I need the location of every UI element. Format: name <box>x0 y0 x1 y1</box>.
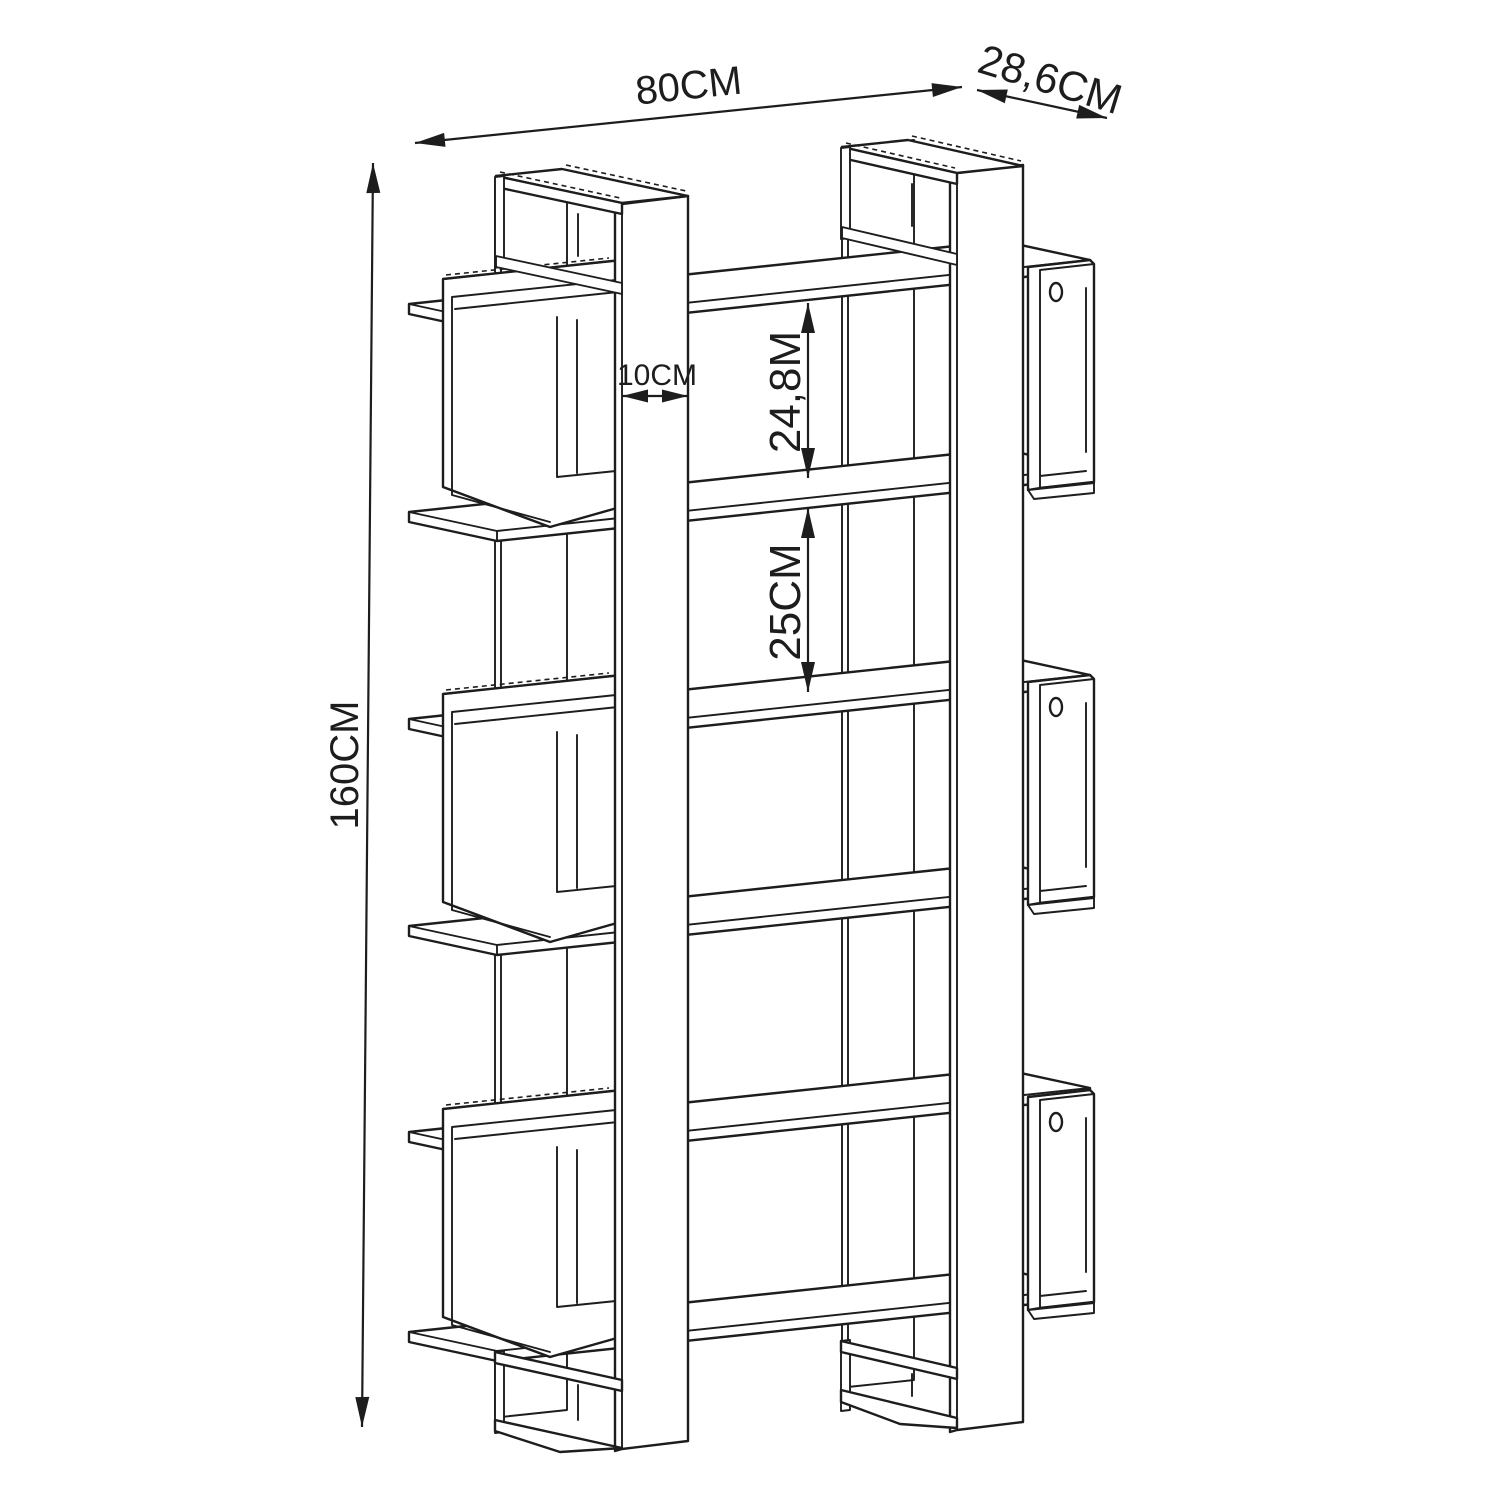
right-cubby-1 <box>1028 260 1094 499</box>
depth-label: 28,6CM <box>973 35 1127 123</box>
upright-width-label: 10CM <box>617 359 697 392</box>
screw-hole-1 <box>1050 283 1062 301</box>
width-label: 80CM <box>633 59 744 114</box>
dimension-upright-width: 10CM <box>617 359 697 403</box>
left-cubby-2 <box>443 673 625 942</box>
screw-hole-3 <box>1050 1113 1062 1131</box>
dimension-depth: 28,6CM <box>973 35 1127 123</box>
dimension-width: 80CM <box>415 59 962 147</box>
gap-upper-label: 24,8M <box>761 331 810 453</box>
dimension-gap-upper: 24,8M <box>761 303 815 478</box>
rear-upright-right <box>842 140 914 1388</box>
left-cubby-3 <box>443 1088 625 1357</box>
dimension-gap-lower: 25CM <box>761 508 815 692</box>
right-cubby-2 <box>1028 675 1094 914</box>
height-label: 160CM <box>323 701 367 830</box>
left-cubby-1 <box>443 258 625 527</box>
right-cubby-3 <box>1028 1090 1094 1319</box>
front-upright-right <box>950 165 1023 1432</box>
dimension-height: 160CM <box>323 163 380 1427</box>
technical-drawing-page: 80CM 28,6CM 160CM 10CM 24,8M 25CM <box>0 0 1500 1500</box>
gap-lower-label: 25CM <box>761 543 810 660</box>
screw-hole-2 <box>1050 698 1062 716</box>
bookshelf-dimension-drawing: 80CM 28,6CM 160CM 10CM 24,8M 25CM <box>0 0 1500 1500</box>
